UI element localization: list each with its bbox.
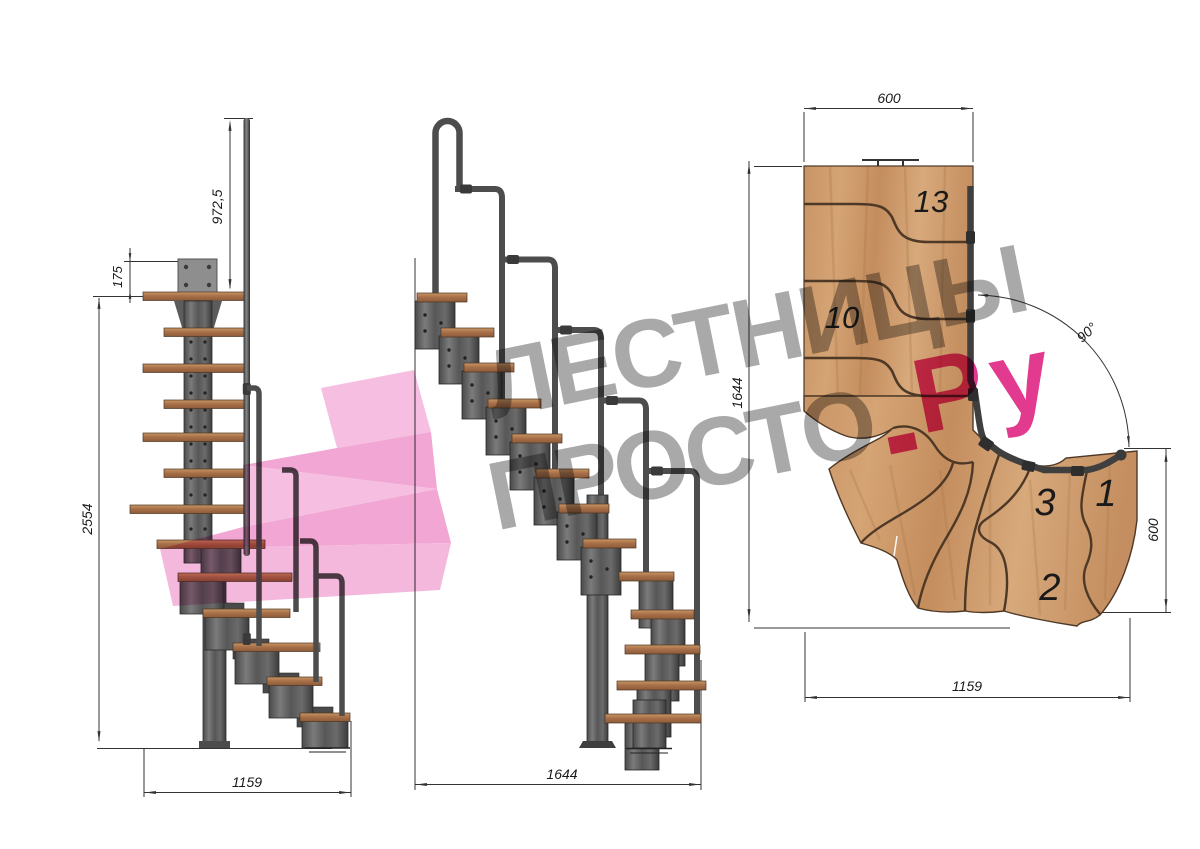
svg-text:13: 13 (914, 184, 948, 219)
svg-text:2: 2 (1038, 567, 1060, 609)
svg-text:1: 1 (1095, 473, 1116, 515)
svg-text:90°: 90° (1073, 319, 1100, 345)
svg-text:600: 600 (877, 90, 901, 106)
svg-text:1159: 1159 (952, 678, 982, 694)
svg-text:2554: 2554 (79, 503, 95, 535)
svg-text:1644: 1644 (546, 766, 577, 782)
svg-text:3: 3 (1034, 482, 1055, 524)
svg-text:972,5: 972,5 (209, 189, 225, 224)
svg-text:600: 600 (1145, 518, 1161, 542)
svg-text:175: 175 (110, 265, 125, 287)
svg-text:1159: 1159 (232, 774, 262, 790)
